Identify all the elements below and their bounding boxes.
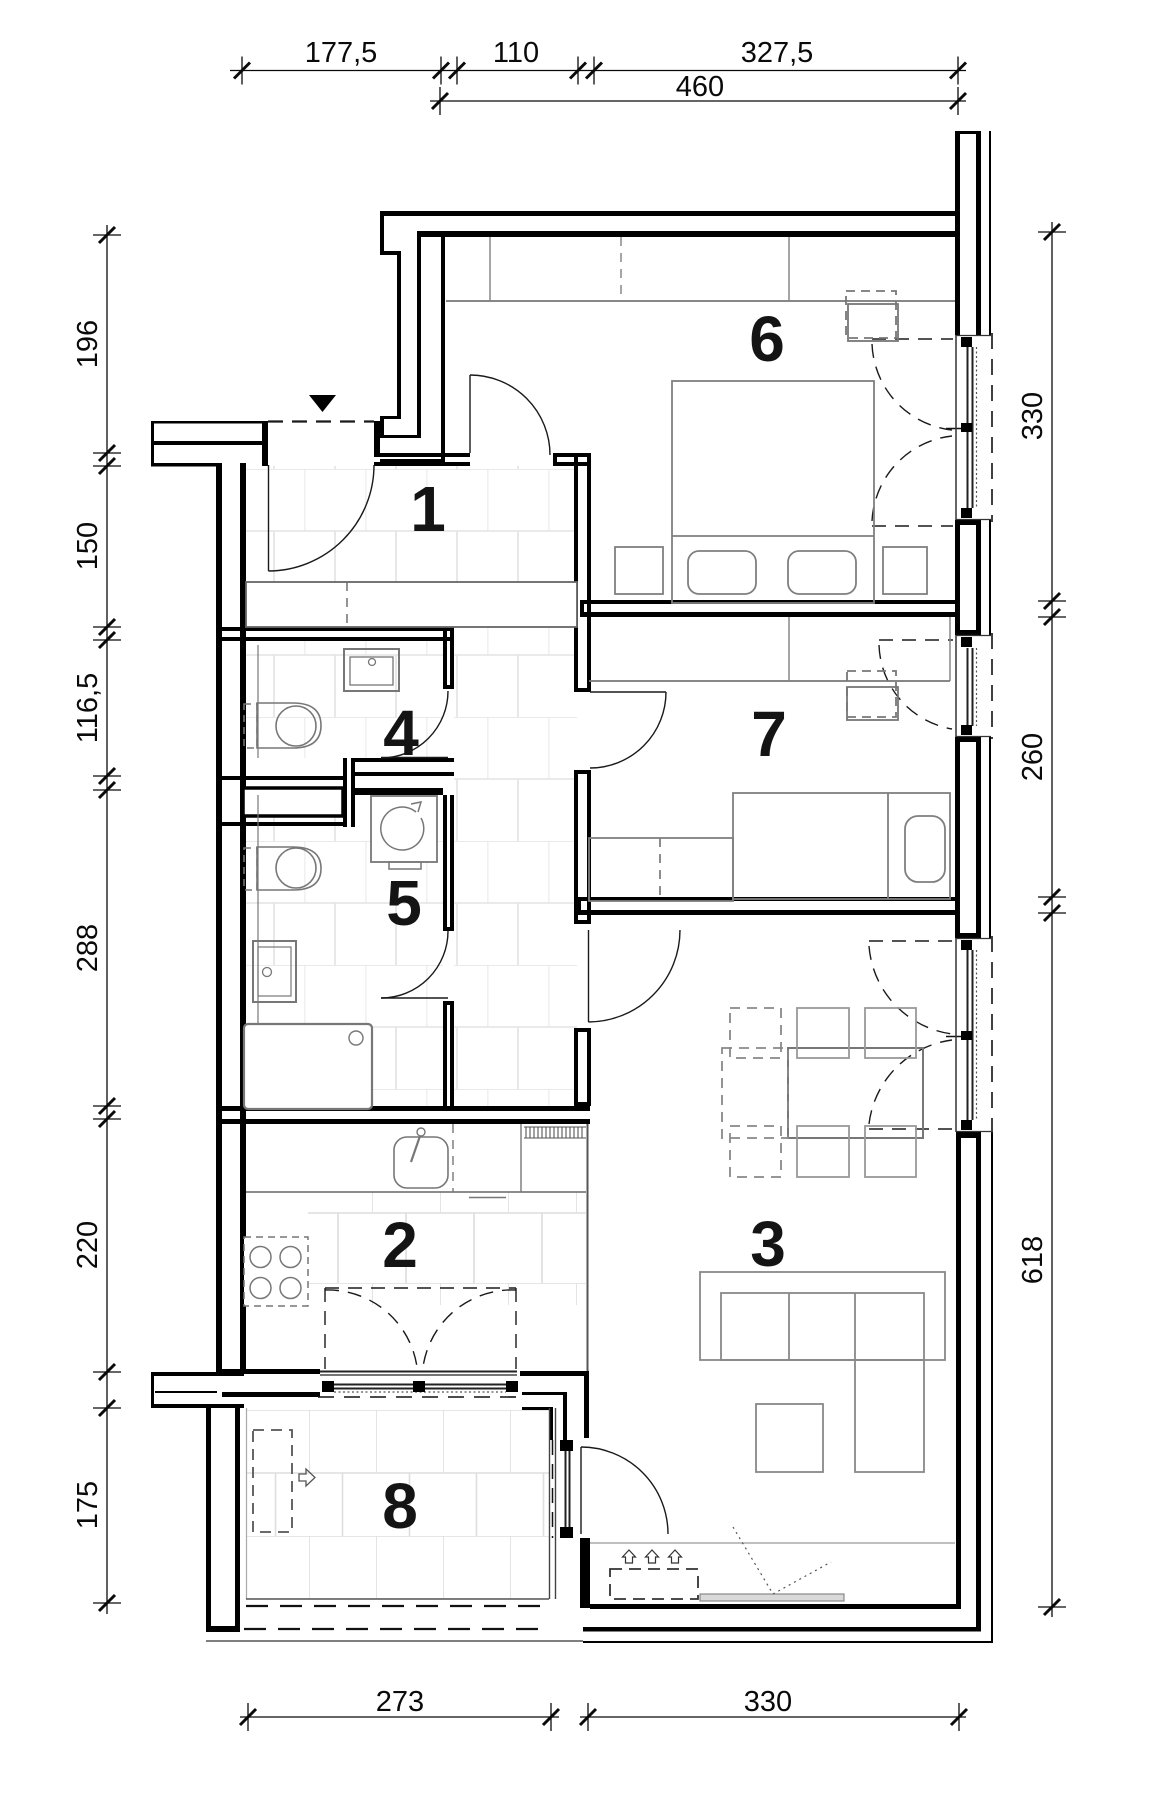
svg-text:288: 288: [72, 924, 104, 972]
svg-text:460: 460: [676, 71, 724, 103]
svg-text:150: 150: [72, 522, 104, 570]
svg-text:196: 196: [72, 320, 104, 368]
svg-text:110: 110: [493, 37, 539, 69]
svg-text:1: 1: [410, 473, 446, 545]
svg-text:330: 330: [1017, 392, 1049, 440]
svg-text:177,5: 177,5: [305, 37, 378, 69]
svg-text:3: 3: [750, 1208, 786, 1280]
svg-text:5: 5: [386, 867, 422, 939]
svg-text:175: 175: [72, 1481, 104, 1529]
svg-text:7: 7: [751, 698, 787, 770]
svg-text:327,5: 327,5: [741, 37, 814, 69]
svg-text:116,5: 116,5: [72, 673, 104, 743]
svg-text:330: 330: [744, 1686, 792, 1718]
svg-text:6: 6: [749, 303, 785, 375]
svg-text:2: 2: [382, 1209, 418, 1281]
svg-text:220: 220: [72, 1221, 104, 1269]
svg-text:4: 4: [383, 697, 419, 769]
svg-text:273: 273: [376, 1686, 424, 1718]
svg-text:260: 260: [1017, 733, 1049, 781]
svg-text:618: 618: [1017, 1236, 1049, 1284]
svg-text:8: 8: [382, 1470, 418, 1542]
